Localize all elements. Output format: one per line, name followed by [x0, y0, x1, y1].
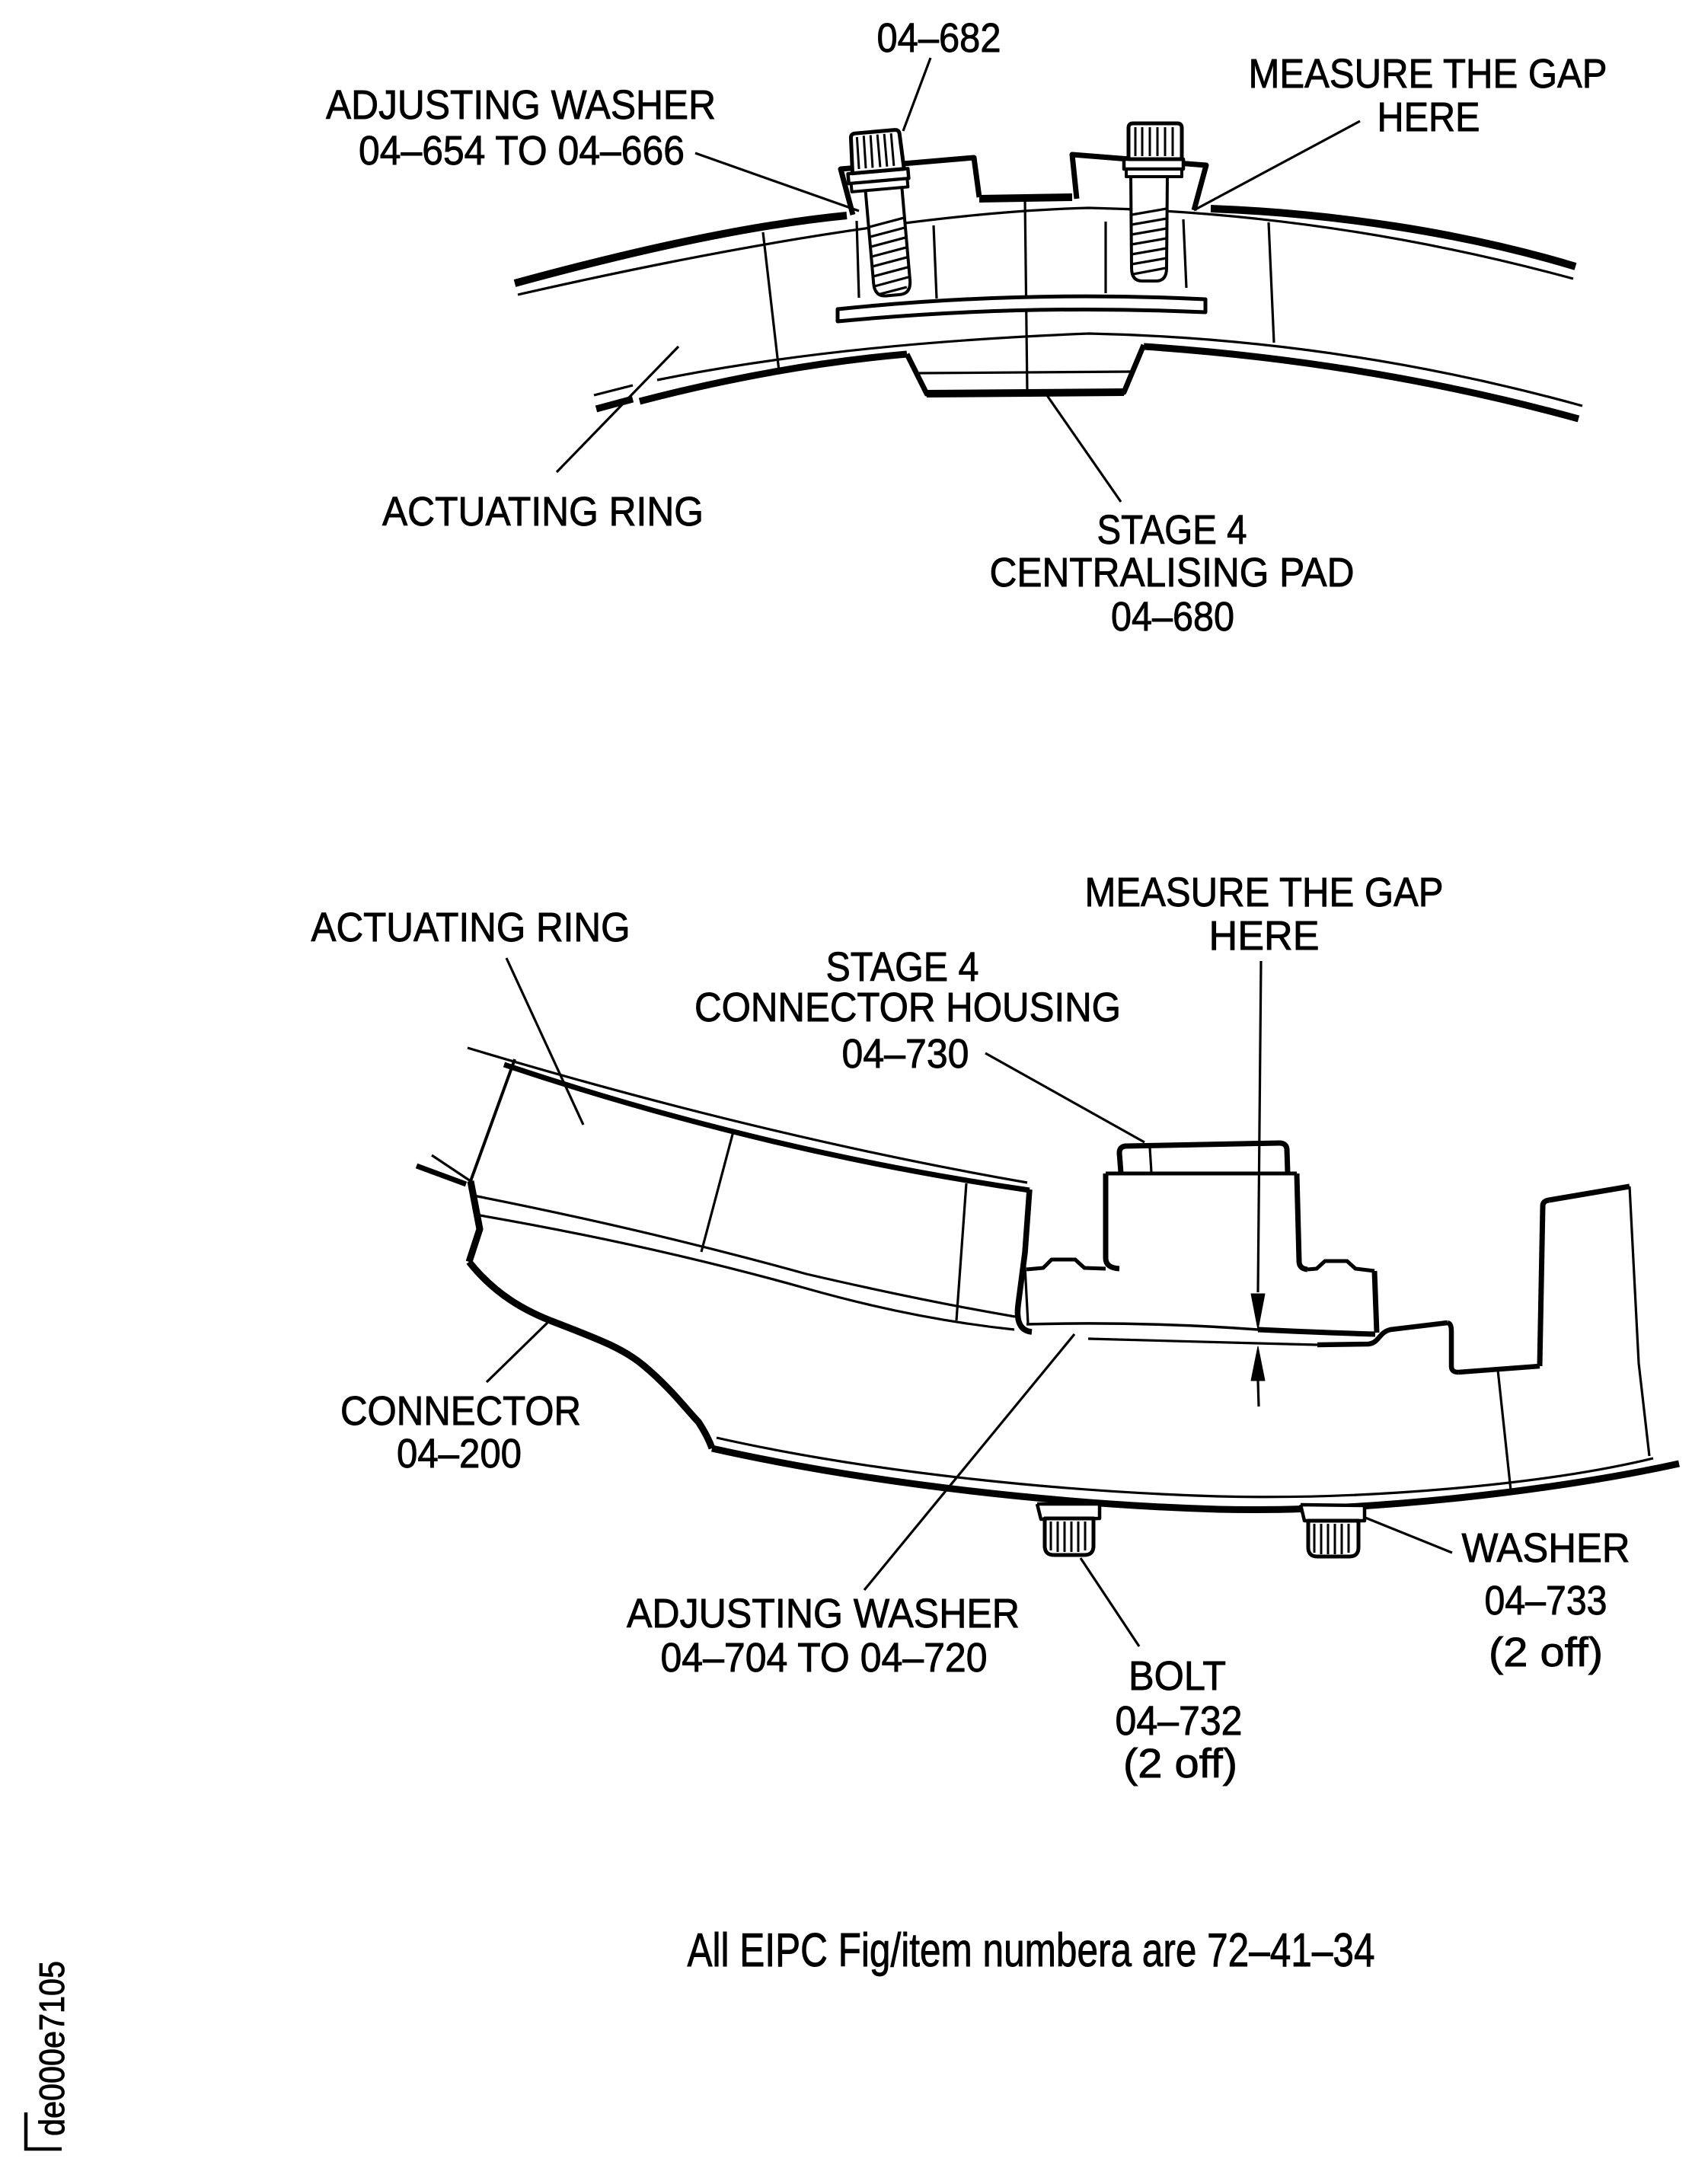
svg-text:BOLT: BOLT: [1129, 1653, 1226, 1699]
svg-text:de000e7105: de000e7105: [32, 1961, 72, 2136]
svg-text:ACTUATING RING: ACTUATING RING: [311, 905, 631, 950]
svg-text:04–730: 04–730: [842, 1031, 969, 1077]
svg-text:HERE: HERE: [1378, 94, 1480, 140]
svg-text:04–200: 04–200: [397, 1431, 522, 1477]
svg-text:ADJUSTING WASHER: ADJUSTING WASHER: [326, 82, 716, 128]
svg-text:All EIPC Fig/item numbera are: All EIPC Fig/item numbera are 72–41–34: [688, 1924, 1375, 1977]
svg-text:ADJUSTING WASHER: ADJUSTING WASHER: [627, 1591, 1020, 1636]
svg-text:CENTRALISING PAD: CENTRALISING PAD: [990, 550, 1355, 595]
svg-text:04–732: 04–732: [1116, 1698, 1243, 1744]
svg-text:04–704 TO 04–720: 04–704 TO 04–720: [661, 1635, 988, 1681]
svg-text:ACTUATING RING: ACTUATING RING: [382, 489, 704, 535]
svg-text:04–654 TO 04–666: 04–654 TO 04–666: [359, 128, 685, 174]
svg-text:STAGE 4: STAGE 4: [826, 944, 979, 990]
svg-text:HERE: HERE: [1209, 913, 1320, 959]
svg-text:MEASURE THE GAP: MEASURE THE GAP: [1085, 870, 1444, 915]
svg-text:CONNECTOR: CONNECTOR: [340, 1388, 581, 1434]
svg-text:04–733: 04–733: [1485, 1578, 1607, 1624]
svg-text:WASHER: WASHER: [1462, 1525, 1630, 1571]
svg-text:(2 off): (2 off): [1489, 1630, 1603, 1675]
svg-text:MEASURE THE GAP: MEASURE THE GAP: [1249, 51, 1607, 97]
svg-text:04–682: 04–682: [877, 15, 1001, 61]
svg-text:CONNECTOR HOUSING: CONNECTOR HOUSING: [694, 985, 1121, 1030]
svg-text:STAGE 4: STAGE 4: [1097, 507, 1247, 553]
svg-text:(2 off): (2 off): [1123, 1741, 1237, 1786]
svg-text:04–680: 04–680: [1111, 594, 1234, 640]
